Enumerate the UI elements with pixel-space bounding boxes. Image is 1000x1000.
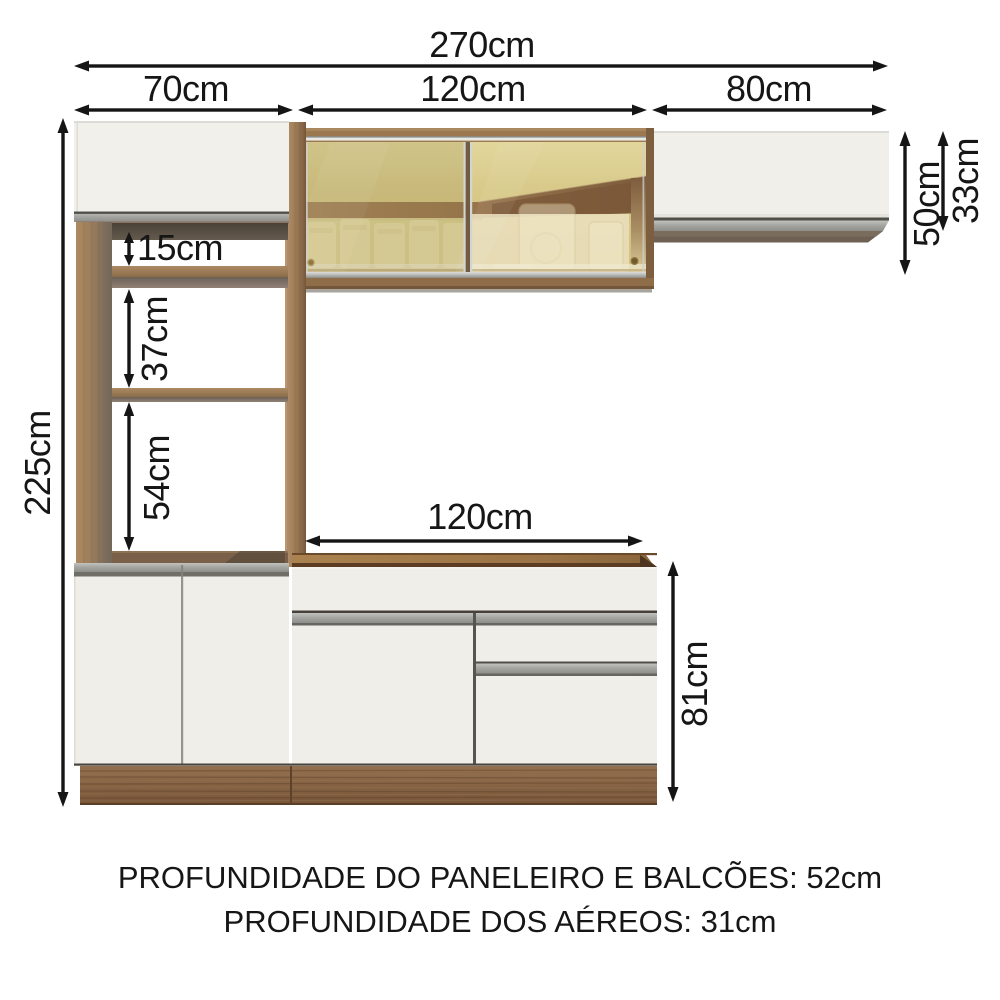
svg-text:225cm: 225cm <box>17 410 58 516</box>
svg-text:15cm: 15cm <box>137 227 223 268</box>
svg-text:70cm: 70cm <box>143 68 229 109</box>
svg-text:50cm: 50cm <box>906 161 947 247</box>
svg-text:120cm: 120cm <box>420 68 526 109</box>
svg-text:37cm: 37cm <box>134 296 175 382</box>
svg-text:80cm: 80cm <box>726 68 812 109</box>
svg-text:270cm: 270cm <box>429 24 535 65</box>
svg-text:81cm: 81cm <box>674 641 715 727</box>
svg-text:PROFUNDIDADE DO PANELEIRO E BA: PROFUNDIDADE DO PANELEIRO E BALCÕES: 52c… <box>118 860 882 895</box>
svg-text:120cm: 120cm <box>427 496 533 537</box>
svg-text:PROFUNDIDADE DOS AÉREOS: 31cm: PROFUNDIDADE DOS AÉREOS: 31cm <box>224 904 777 939</box>
svg-text:54cm: 54cm <box>136 435 177 521</box>
svg-text:33cm: 33cm <box>945 138 986 224</box>
